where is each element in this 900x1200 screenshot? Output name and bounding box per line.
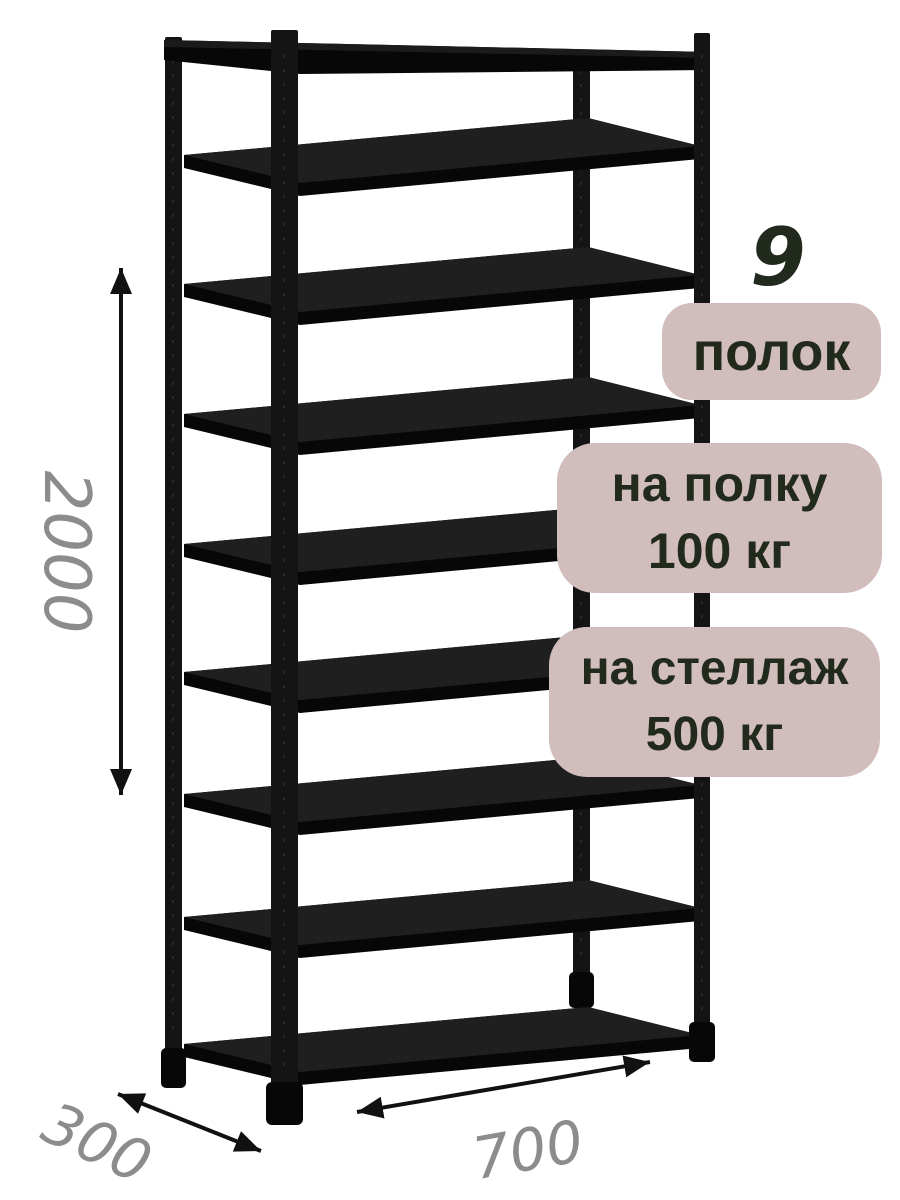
product-image: 2000 300 700 9 полок на полку 100 кг на … [0, 0, 900, 1200]
shelf-count-badge: полок [662, 303, 881, 400]
shelving-unit-illustration [0, 0, 900, 1200]
rack-load-line2: 500 кг [646, 702, 783, 768]
height-dimension-label: 2000 [29, 471, 103, 634]
shelf-load-badge: на полку 100 кг [557, 443, 882, 593]
shelf-load-line1: на полку [612, 451, 828, 518]
shelf-load-line2: 100 кг [648, 518, 791, 585]
rack-load-badge: на стеллаж 500 кг [549, 627, 880, 777]
shelf-count-number: 9 [698, 218, 858, 298]
shelf-count-label: полок [693, 321, 851, 383]
rack-load-line1: на стеллаж [581, 636, 849, 702]
